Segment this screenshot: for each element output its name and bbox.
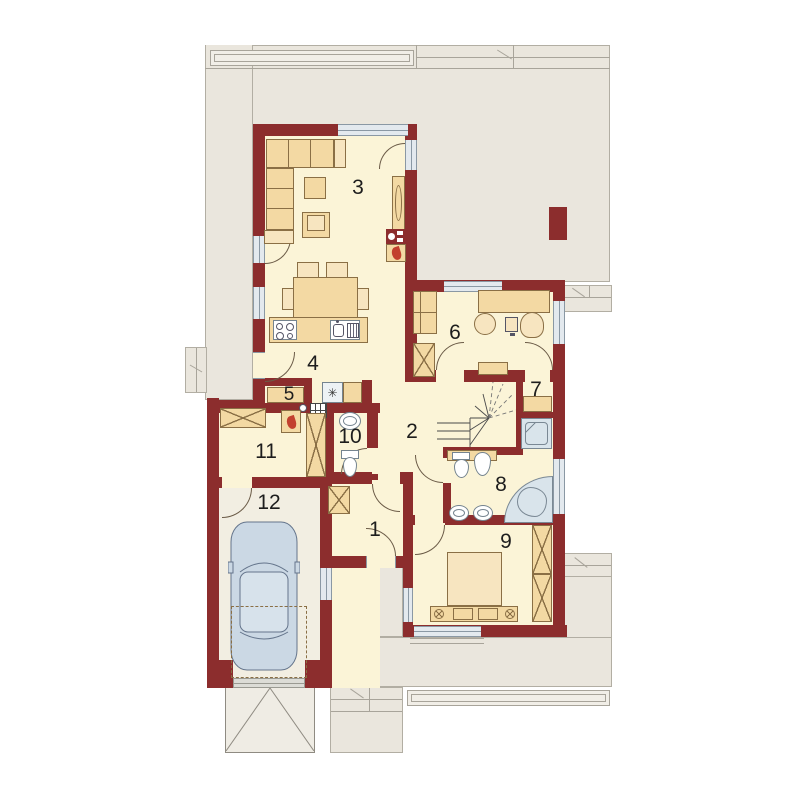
wardrobe-room11 — [220, 408, 266, 428]
dining-table — [293, 277, 358, 318]
room-label-9: 9 — [500, 530, 512, 554]
room-label-2: 2 — [406, 420, 418, 444]
pergola-top-inner — [214, 54, 410, 62]
sofa-top — [266, 139, 334, 168]
fireplace-bar — [397, 238, 403, 242]
wall-room1-south-b — [396, 556, 413, 568]
sink-bowl — [333, 324, 344, 337]
pillow — [453, 608, 473, 620]
tall-cabinet-room11 — [306, 413, 326, 477]
bathroom-sink — [473, 505, 493, 521]
coffee-table — [304, 177, 326, 199]
window-living-north — [338, 124, 408, 136]
bathroom-sink — [449, 505, 469, 521]
pergola-top — [210, 50, 414, 66]
faucet — [336, 320, 339, 323]
armchair — [302, 212, 330, 238]
step-divider — [369, 688, 370, 711]
steps-southeast — [564, 553, 612, 577]
bathtub-basin — [517, 487, 547, 517]
room-label-7: 7 — [530, 378, 542, 402]
kitchen-sink — [330, 320, 360, 340]
office-chair-round — [474, 313, 496, 335]
floor-plan: ✳ — [0, 0, 800, 800]
door-gap-kitchen-west — [253, 352, 265, 379]
burner — [276, 323, 283, 330]
step-line — [565, 297, 611, 298]
freezer-star-icon: ✳ — [327, 386, 337, 400]
monitor-base — [510, 333, 515, 336]
entry-steps-south — [330, 687, 403, 753]
freezer: ✳ — [322, 382, 343, 403]
parking-outline — [231, 606, 307, 678]
entry-steps-east — [564, 285, 612, 312]
burner — [287, 333, 293, 339]
wall-room1-north-b — [400, 472, 413, 484]
armchair-seat — [307, 215, 325, 231]
wall-room1-south-a — [330, 556, 366, 568]
boiler — [281, 410, 301, 433]
room-label-4: 4 — [307, 352, 319, 376]
wall-office-stairs-c — [550, 370, 553, 382]
sofa-armrest-bottom — [264, 230, 294, 244]
fireplace-insert — [386, 229, 406, 244]
wall-west-house — [207, 398, 219, 688]
room-label-6: 6 — [449, 321, 461, 345]
fireplace-dot — [388, 233, 395, 240]
chimney — [549, 207, 567, 240]
bedside-lamp — [434, 609, 444, 619]
entrance-door-gap — [366, 556, 396, 568]
room-label-5: 5 — [284, 384, 295, 406]
bedside-lamp — [505, 609, 515, 619]
burner — [276, 332, 284, 340]
sink-basin — [453, 509, 465, 517]
sofa-left — [266, 168, 294, 230]
shower — [521, 418, 552, 449]
window-sill-bedroom — [410, 638, 484, 644]
wall-room10-east-a — [367, 403, 378, 448]
wall-room5-east — [304, 386, 312, 403]
room-label-11: 11 — [255, 440, 277, 464]
fireplace-bar — [397, 231, 403, 235]
terrace-band-line — [205, 68, 610, 69]
office-sofa — [413, 291, 437, 334]
monitor-icon — [505, 317, 518, 332]
window-garage-porch — [320, 568, 332, 600]
closet-room1 — [328, 486, 350, 514]
side-steps-west — [185, 347, 207, 393]
step-line — [331, 699, 402, 700]
pergola-bottom — [407, 690, 610, 706]
terrace-mid-line — [416, 57, 610, 58]
pergola-bottom-inner — [411, 694, 606, 702]
shower-tray — [525, 422, 548, 445]
wall-room5-north — [253, 378, 312, 386]
wardrobe-bedroom-lower — [532, 574, 552, 622]
flame-icon — [285, 415, 298, 430]
room-label-3: 3 — [352, 176, 364, 200]
room-label-1: 1 — [369, 518, 381, 542]
window-living-west — [253, 287, 265, 319]
wall-room10-east-b — [367, 474, 378, 480]
wall-stub-kitchen — [362, 380, 372, 403]
tv-cabinet — [392, 176, 405, 230]
step-arrow — [572, 288, 585, 297]
staircase — [437, 382, 516, 447]
wall-room10-west — [325, 413, 334, 477]
dining-chair — [326, 262, 348, 278]
side-table-office — [478, 362, 508, 375]
window-bedroom-porch — [403, 588, 413, 622]
room-label-10: 10 — [338, 425, 361, 449]
step-arrow — [350, 689, 364, 699]
step-line — [331, 711, 402, 712]
garage-door — [233, 678, 305, 688]
room-label-12: 12 — [257, 491, 280, 515]
cabinet-office — [413, 343, 435, 377]
sink-drainer — [347, 323, 359, 338]
room-label-8: 8 — [495, 473, 507, 497]
bed — [447, 552, 502, 606]
tv-icon — [395, 185, 402, 221]
kitchen-appliance — [343, 382, 362, 403]
dining-chair — [297, 262, 319, 278]
window-bedroom-south — [414, 626, 481, 637]
desk — [478, 290, 550, 313]
wall-garage-pillar-right — [305, 660, 332, 688]
terrace-door-living-east — [405, 140, 417, 170]
step-line — [565, 565, 611, 566]
burner — [286, 323, 294, 331]
wardrobe-bedroom-upper — [532, 525, 552, 574]
terrace-left-strip — [205, 45, 253, 400]
pillow — [478, 608, 498, 620]
office-chair — [520, 312, 544, 338]
wall-room11-room12-b — [252, 477, 332, 488]
step-arrow — [574, 557, 587, 568]
fireplace-hearth — [386, 244, 406, 262]
sink-basin — [477, 509, 489, 517]
driveway — [225, 688, 315, 753]
sofa-armrest-right — [334, 139, 346, 168]
window-office-east — [553, 301, 565, 344]
window-bathroom-east — [553, 459, 565, 514]
step-divider — [589, 286, 590, 297]
flame-icon — [390, 246, 403, 261]
hob — [273, 320, 297, 340]
